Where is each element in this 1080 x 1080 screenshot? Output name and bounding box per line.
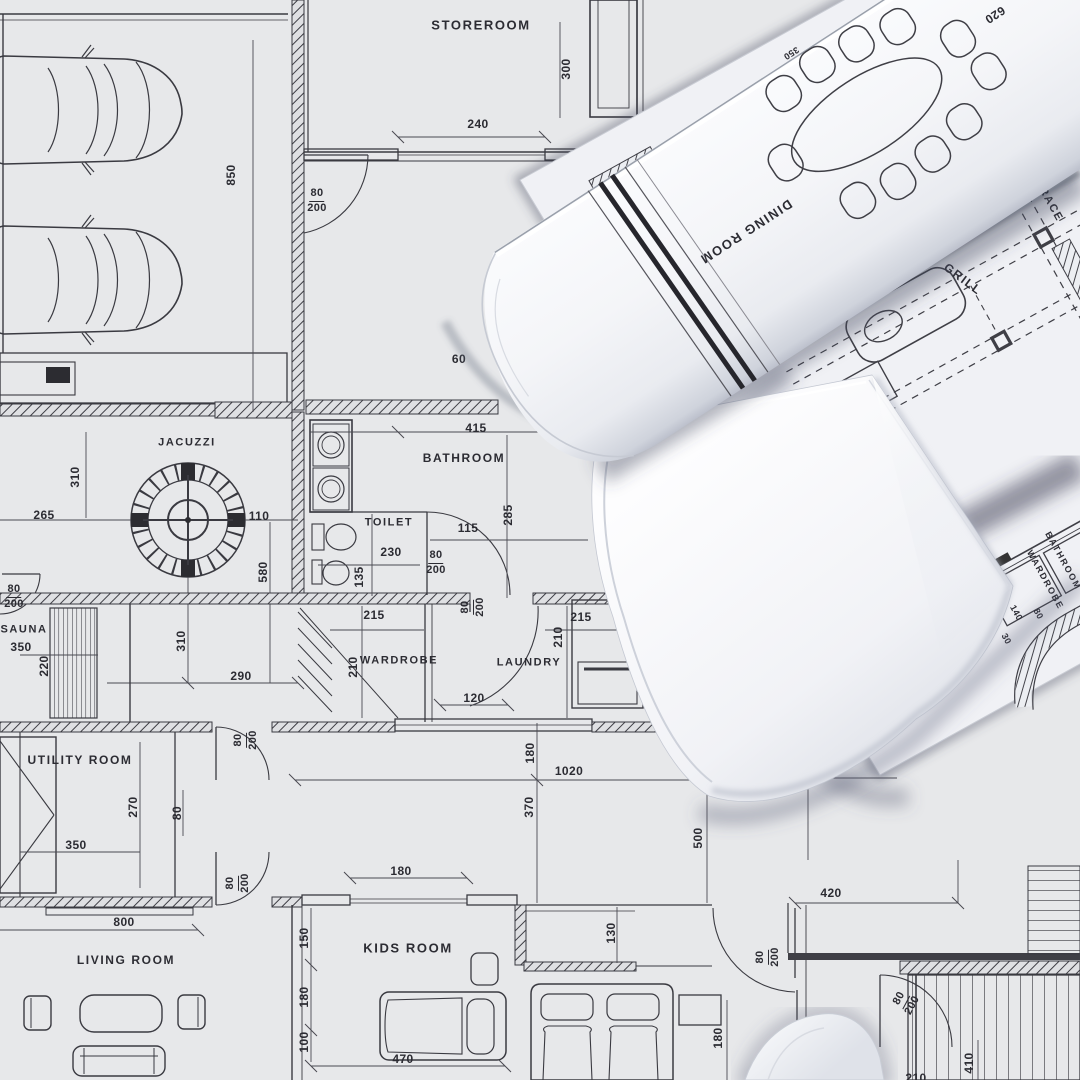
rolled-blueprints [0,0,1080,1080]
blueprint-scene: STOREROOMJACUZZIBATHROOMTOILETSAUNAWARDR… [0,0,1080,1080]
